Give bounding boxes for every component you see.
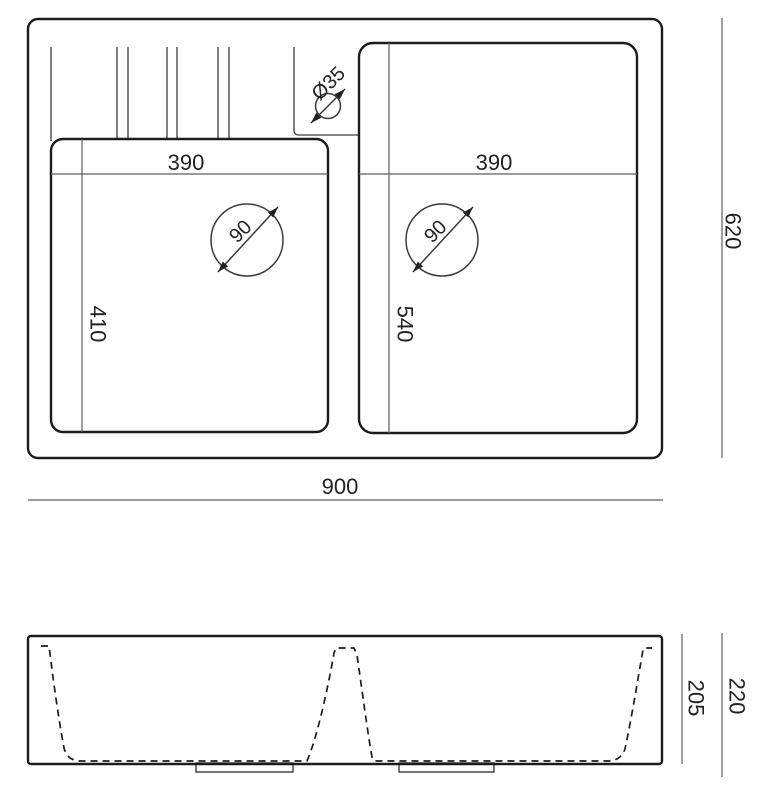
left-drain-diameter-label: 90 [225,216,256,247]
side-view: 205 220 [28,633,749,777]
overall-height-label: 220 [724,678,749,715]
sink-outline-side-view [28,636,662,764]
sink-outline-top-view [28,19,662,458]
faucet-hole-diameter-label: Ø35 [308,63,350,105]
right-drain-diameter-label: 90 [420,216,451,247]
bowl-profile-dashed [41,646,652,761]
right-bowl-width-label: 390 [476,150,513,175]
sink-technical-drawing: Ø35 90 90 390 390 410 540 620 900 [0,0,758,800]
right-bowl-depth-label: 540 [392,306,417,343]
right-bowl-outline [359,43,637,433]
left-bowl-depth-label: 410 [85,306,110,343]
drawing-svg: Ø35 90 90 390 390 410 540 620 900 [0,0,758,800]
top-view: Ø35 90 90 390 390 410 540 620 900 [28,18,745,500]
left-bowl-outline [51,139,328,432]
overall-depth-label: 620 [720,213,745,250]
overall-width-label: 900 [322,474,359,499]
bowl-depth-label: 205 [683,680,708,717]
left-bowl-width-label: 390 [168,150,205,175]
